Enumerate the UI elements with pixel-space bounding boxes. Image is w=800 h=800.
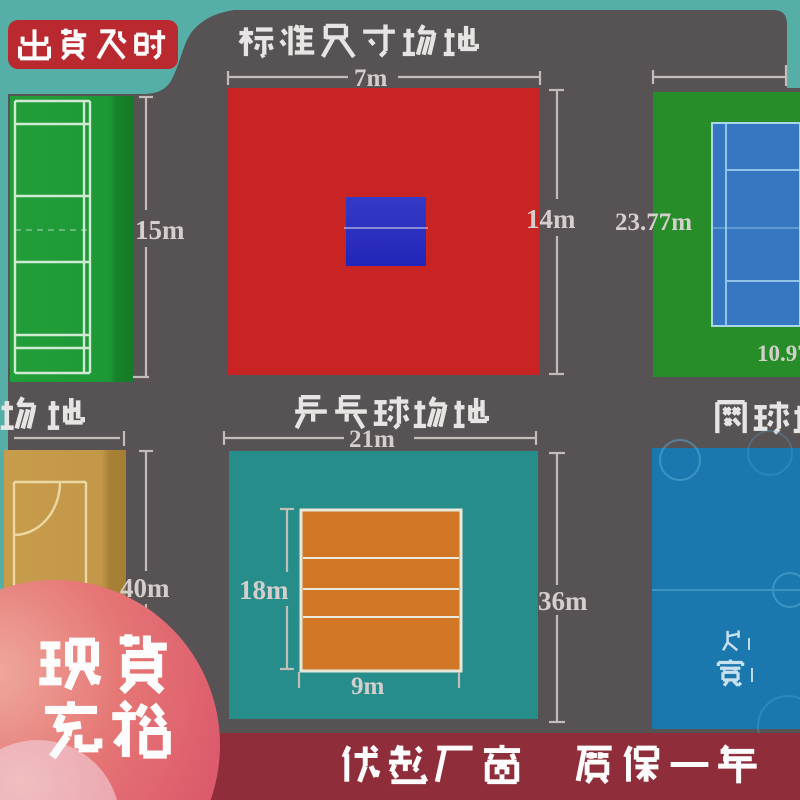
svg-text:9m: 9m xyxy=(351,673,385,700)
svg-text:15m: 15m xyxy=(135,215,185,245)
svg-text:14m: 14m xyxy=(526,204,576,234)
svg-text:10.97: 10.97 xyxy=(757,341,800,366)
svg-text:21m: 21m xyxy=(349,426,395,453)
svg-text:36m: 36m xyxy=(538,586,588,616)
svg-text:7m: 7m xyxy=(354,65,388,92)
svg-text:23.77m: 23.77m xyxy=(615,209,692,236)
svg-text:18m: 18m xyxy=(239,575,289,605)
